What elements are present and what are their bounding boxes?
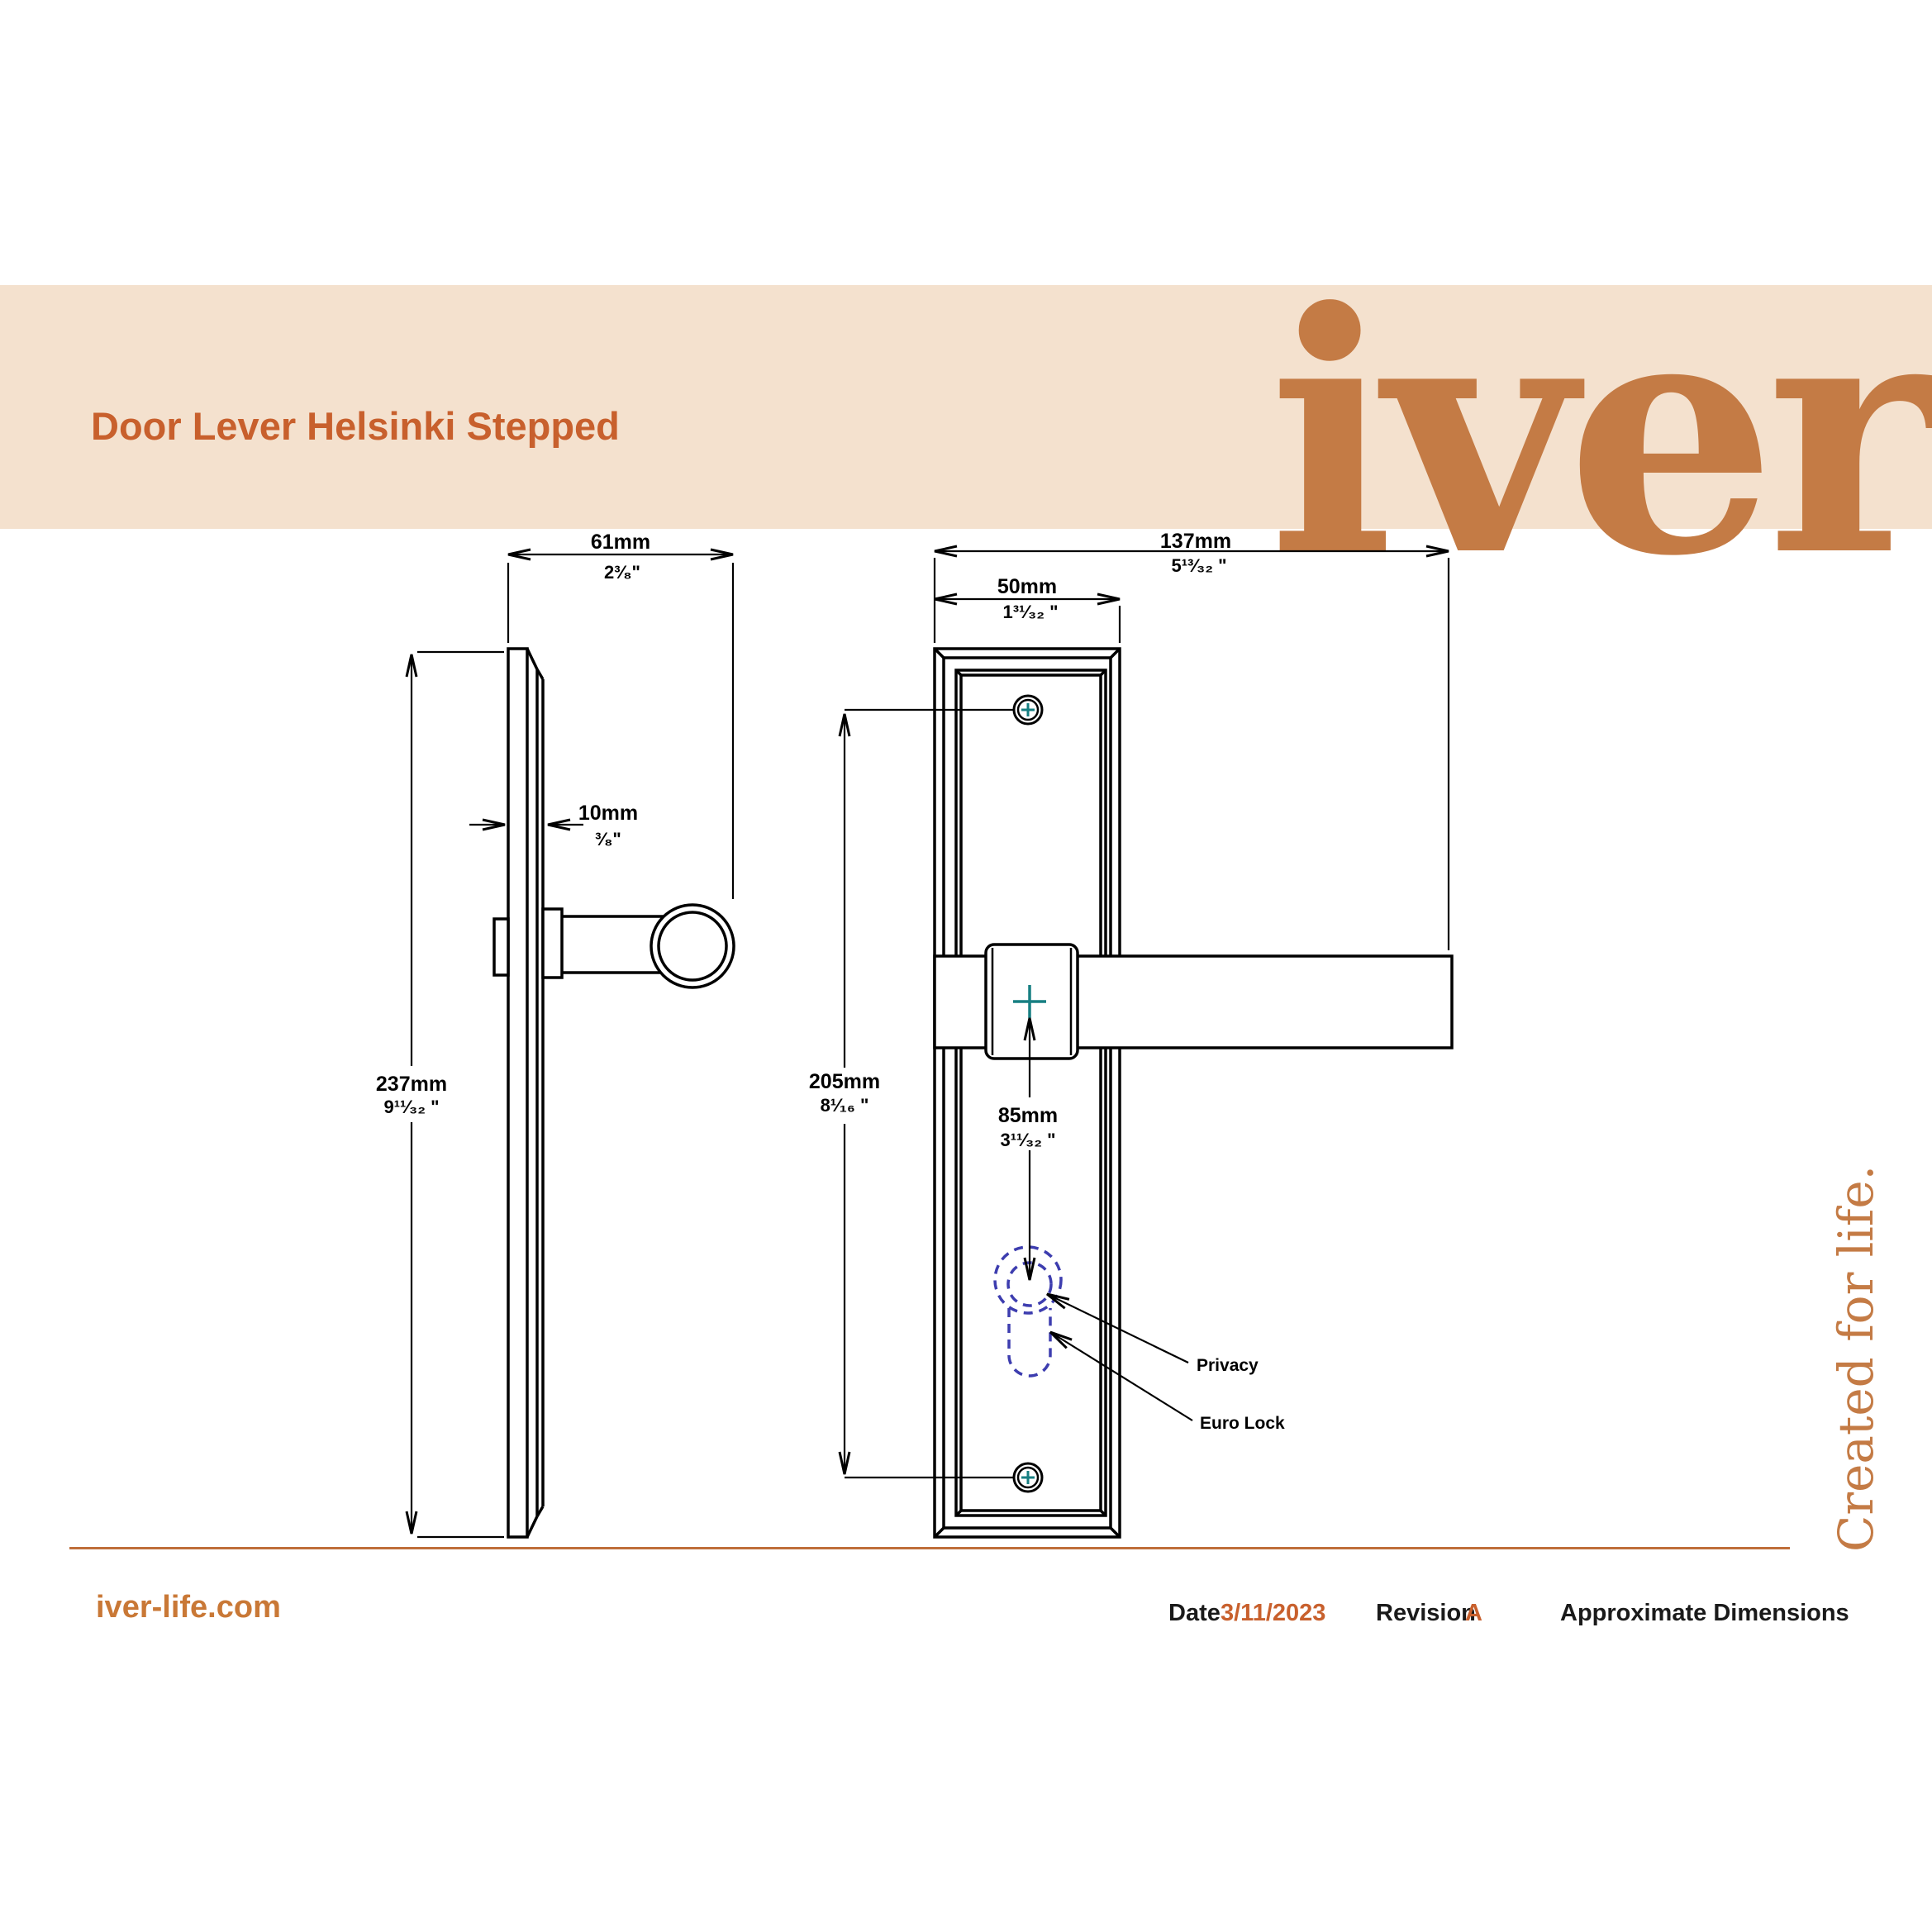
side-spindle — [494, 919, 508, 975]
dim-50mm-label: 50mm — [997, 575, 1057, 598]
footer-meta: Date 3/11/2023 Revision A Approximate Di… — [0, 1600, 1932, 1633]
dim-205mm — [845, 710, 1013, 1478]
revision-label: Revision — [1376, 1600, 1476, 1627]
privacy-leader-line — [1047, 1294, 1188, 1363]
front-plate-mid — [944, 658, 1111, 1528]
dim-137mm-inch-label: 5¹³⁄₃₂ " — [1171, 555, 1226, 576]
dim-237mm-label: 237mm — [376, 1073, 447, 1096]
dim-61mm-label: 61mm — [591, 531, 650, 554]
side-lever-knob-inner — [659, 912, 726, 980]
dim-10mm-label: 10mm — [578, 802, 638, 825]
dim-85mm-label: 85mm — [998, 1104, 1058, 1127]
side-lever-collar — [543, 909, 562, 978]
footer-rule — [69, 1547, 1790, 1549]
approximate-dimensions-note: Approximate Dimensions — [1560, 1600, 1849, 1627]
spec-sheet: Door Lever Helsinki Stepped iver Created… — [0, 0, 1932, 1932]
dim-237mm-inch-label: 9¹¹⁄₃₂ " — [383, 1097, 439, 1117]
dim-50mm-inch-label: 1³¹⁄₃₂ " — [1002, 602, 1058, 622]
euro-lock-leader-line — [1050, 1332, 1192, 1420]
screw-top — [1014, 696, 1042, 724]
euro-cylinder-stem — [1009, 1308, 1050, 1376]
screw-bottom — [1014, 1463, 1042, 1492]
front-plate-inner-a — [956, 670, 1106, 1516]
front-plate-bevels-inner — [956, 670, 1106, 1516]
side-plate-step-1 — [527, 649, 537, 1537]
dim-205mm-inch-label: 8¹⁄₁₆ " — [821, 1095, 869, 1116]
euro-lock-label: Euro Lock — [1200, 1414, 1285, 1433]
technical-drawing: 61mm 2³⁄₈" 10mm ³⁄₈" 237mm 9¹¹⁄₃₂ " — [0, 0, 1932, 1932]
front-plate-inner-b — [961, 675, 1101, 1511]
privacy-label: Privacy — [1197, 1356, 1259, 1375]
dim-61mm-inch-label: 2³⁄₈" — [604, 562, 640, 583]
date-value: 3/11/2023 — [1221, 1600, 1325, 1627]
date-label: Date — [1168, 1600, 1221, 1627]
side-plate-face — [508, 649, 527, 1537]
dim-205mm-label: 205mm — [809, 1070, 880, 1093]
side-view — [494, 649, 734, 1537]
keyhole-dashed — [995, 1247, 1061, 1376]
dim-85mm-inch-label: 3¹¹⁄₃₂ " — [1000, 1130, 1055, 1150]
front-view — [935, 649, 1452, 1537]
revision-value: A — [1465, 1600, 1482, 1627]
dim-10mm-inch-label: ³⁄₈" — [595, 829, 621, 849]
dim-137mm-label: 137mm — [1160, 530, 1231, 553]
